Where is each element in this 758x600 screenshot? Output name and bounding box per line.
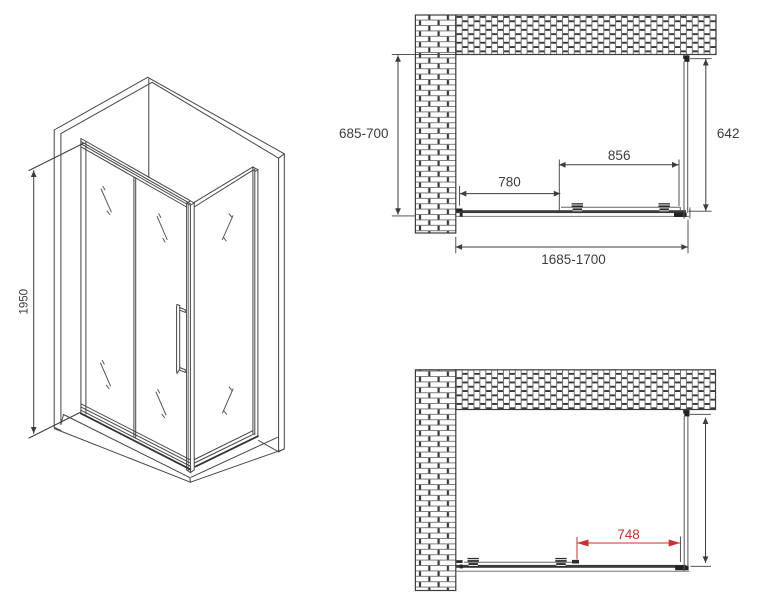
svg-text:1685-1700: 1685-1700 [541, 252, 606, 267]
svg-text:856: 856 [608, 148, 631, 163]
svg-text:780: 780 [498, 174, 521, 189]
svg-text:685-700: 685-700 [339, 126, 389, 141]
svg-text:1950: 1950 [19, 289, 31, 315]
svg-text:642: 642 [717, 126, 740, 141]
svg-text:748: 748 [617, 527, 640, 542]
